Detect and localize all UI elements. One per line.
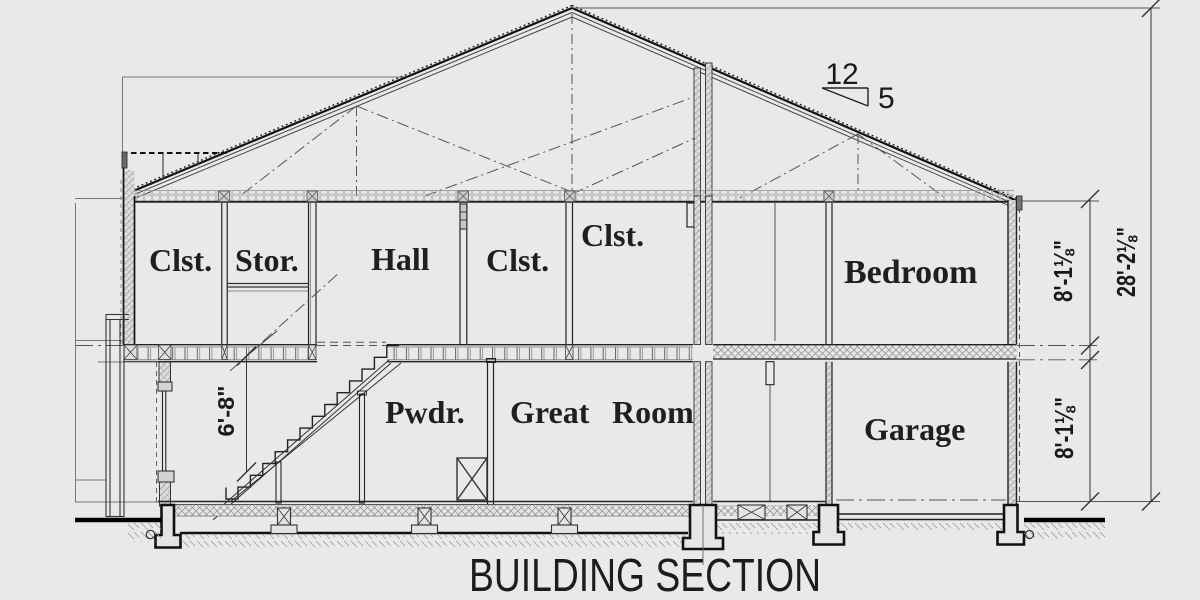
svg-text:Hall: Hall bbox=[371, 241, 430, 277]
svg-text:Room: Room bbox=[612, 394, 694, 430]
svg-text:5: 5 bbox=[878, 82, 895, 115]
svg-text:28'-2⅛": 28'-2⅛" bbox=[1111, 227, 1141, 297]
svg-text:8'-1⅛": 8'-1⅛" bbox=[1048, 240, 1078, 302]
svg-text:Stor.: Stor. bbox=[235, 242, 299, 278]
svg-text:Great: Great bbox=[510, 394, 590, 430]
svg-text:6'-8": 6'-8" bbox=[213, 386, 239, 437]
svg-text:8'-1⅛": 8'-1⅛" bbox=[1049, 397, 1079, 459]
svg-text:Bedroom: Bedroom bbox=[844, 254, 977, 291]
svg-text:Garage: Garage bbox=[864, 411, 965, 447]
svg-text:BUILDING SECTION: BUILDING SECTION bbox=[469, 549, 821, 600]
svg-text:Clst.: Clst. bbox=[581, 217, 644, 253]
svg-text:12: 12 bbox=[825, 58, 858, 91]
svg-text:Pwdr.: Pwdr. bbox=[385, 394, 465, 430]
svg-text:Clst.: Clst. bbox=[486, 242, 549, 278]
svg-text:Clst.: Clst. bbox=[149, 242, 212, 278]
